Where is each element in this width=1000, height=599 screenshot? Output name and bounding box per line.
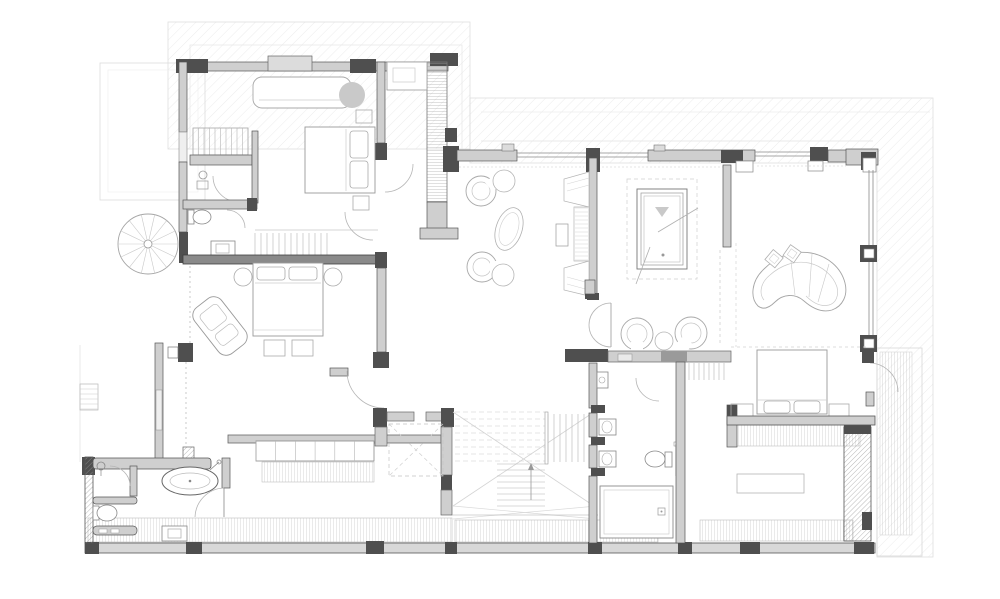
side-terrace-hatch — [880, 352, 912, 535]
stair-rail — [545, 412, 548, 464]
lintel — [426, 412, 442, 421]
round-table — [492, 264, 514, 286]
window-notch — [654, 145, 665, 151]
bathtub-drain — [189, 480, 192, 483]
wall — [190, 155, 252, 165]
wall-dark — [591, 437, 605, 445]
bed — [305, 127, 375, 193]
column — [810, 147, 828, 161]
bedroom1-left-wall — [179, 162, 187, 232]
deck-hatch — [88, 518, 452, 542]
basin — [597, 372, 608, 388]
column — [350, 59, 376, 73]
wall-bracket — [168, 347, 178, 358]
toilet-bowl — [645, 451, 665, 467]
window — [179, 132, 187, 162]
bedroom1-right-wall — [377, 62, 385, 143]
cabinet-hatch — [262, 462, 374, 482]
column — [186, 542, 202, 554]
pool-ball — [662, 254, 665, 257]
wall — [589, 445, 597, 468]
wall — [589, 476, 597, 543]
lintel — [387, 412, 414, 421]
wall-dark — [591, 405, 605, 413]
floor-plan — [0, 0, 1000, 599]
column — [727, 405, 737, 417]
wall-mid — [661, 351, 687, 362]
column — [443, 146, 459, 172]
window-sill — [268, 56, 312, 71]
media-shelf — [574, 207, 589, 261]
wall-stub — [330, 368, 348, 376]
bath-mid-wall — [93, 497, 137, 504]
column — [247, 198, 257, 211]
column — [441, 475, 452, 490]
column — [373, 352, 389, 368]
window-notch — [502, 144, 514, 151]
cabinet-box — [736, 161, 753, 172]
bedroom2-right-wall — [377, 268, 386, 352]
partition-wall — [723, 165, 731, 247]
mullion-inner — [864, 249, 874, 258]
insulated-wall-hatch — [427, 62, 447, 202]
column — [178, 343, 193, 362]
wardrobe-hatch — [732, 425, 860, 446]
wall — [427, 202, 447, 232]
shelf-box — [99, 529, 107, 533]
toilet-bowl — [97, 505, 117, 521]
side-table — [339, 82, 365, 108]
window — [156, 390, 162, 430]
column — [373, 408, 387, 427]
wall-return — [420, 228, 458, 239]
wall-dark — [591, 468, 605, 476]
bed — [757, 350, 827, 414]
column — [854, 542, 874, 554]
column — [375, 252, 387, 268]
shower-drain-dot — [661, 511, 663, 513]
wall-dark — [565, 349, 608, 362]
bedroom1-left-wall — [179, 62, 187, 132]
great-room-top-wall — [457, 150, 517, 161]
round-table — [493, 170, 515, 192]
column — [862, 512, 872, 530]
column — [375, 143, 387, 160]
deck-hatch — [700, 520, 853, 541]
spiral-staircase-post — [144, 240, 152, 248]
column — [366, 541, 384, 554]
bed — [253, 263, 323, 336]
toilet-bowl — [193, 210, 211, 224]
sink — [599, 451, 616, 467]
bath-left-wall — [85, 457, 93, 543]
column — [445, 128, 457, 142]
wall-stub — [585, 280, 595, 294]
corridor-wall — [676, 362, 685, 543]
shelf-box — [111, 529, 119, 533]
column — [844, 425, 871, 434]
shower-partition — [130, 466, 137, 496]
round-table — [655, 332, 673, 350]
wall-cap — [585, 294, 595, 299]
floor-plan-page — [0, 0, 1000, 599]
corner-box — [863, 158, 876, 172]
media-cabinet — [556, 224, 568, 246]
column — [445, 542, 457, 554]
shower-room-wall — [252, 131, 258, 203]
desk-table — [737, 474, 804, 493]
fireplace-wall — [589, 158, 597, 298]
wall — [589, 363, 597, 408]
column — [678, 542, 692, 554]
sofa — [253, 77, 351, 108]
stair-wall — [441, 490, 452, 515]
pool-table — [637, 189, 687, 269]
toilet-tank — [665, 452, 672, 467]
sink — [599, 419, 616, 435]
wall — [866, 392, 874, 406]
column — [740, 542, 760, 554]
column — [85, 542, 99, 554]
column — [588, 542, 602, 554]
headboard-wall — [727, 416, 875, 425]
wall — [589, 413, 597, 437]
wall — [183, 200, 257, 209]
wall-dark — [862, 350, 874, 363]
pier — [375, 427, 387, 446]
vanity — [162, 526, 187, 541]
vanity — [211, 241, 235, 256]
window-notch — [618, 354, 632, 361]
bath-right-wall — [222, 458, 230, 488]
